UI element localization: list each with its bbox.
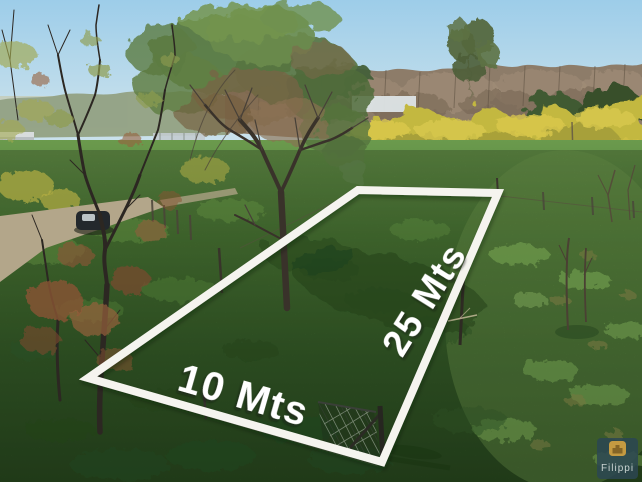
parked-car	[74, 211, 114, 235]
fence-post	[633, 201, 634, 218]
fence-post	[543, 192, 544, 210]
aerial-photo-land-plot: 10 Mts 25 Mts Filippi	[0, 0, 642, 482]
scene-photo: 10 Mts 25 Mts Filippi	[0, 0, 642, 482]
building-logo-icon	[609, 441, 626, 456]
watermark-brand-text: Filippi	[601, 463, 634, 474]
watermark: Filippi	[597, 438, 638, 479]
fence-post	[592, 197, 593, 215]
